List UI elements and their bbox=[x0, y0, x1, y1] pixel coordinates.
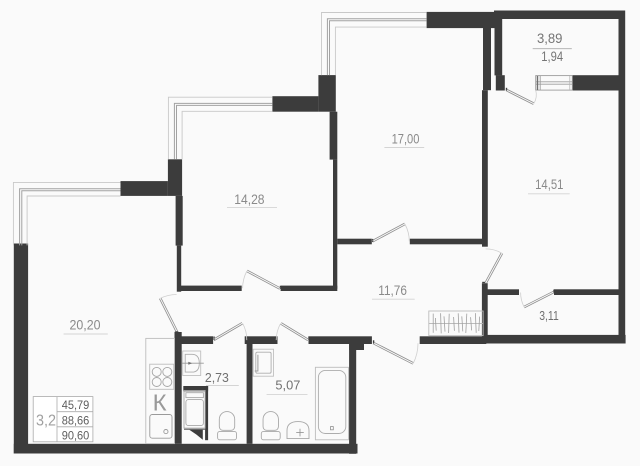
svg-text:К: К bbox=[153, 390, 167, 416]
svg-text:90,60: 90,60 bbox=[62, 428, 90, 442]
svg-text:1,94: 1,94 bbox=[541, 49, 563, 64]
svg-text:17,00: 17,00 bbox=[392, 131, 420, 146]
svg-text:11,76: 11,76 bbox=[378, 283, 407, 298]
svg-text:20,20: 20,20 bbox=[70, 318, 101, 333]
svg-text:3,89: 3,89 bbox=[537, 31, 563, 46]
svg-text:2,73: 2,73 bbox=[205, 370, 229, 385]
svg-text:3,2: 3,2 bbox=[36, 413, 56, 430]
svg-text:3,11: 3,11 bbox=[539, 308, 559, 323]
svg-text:14,51: 14,51 bbox=[535, 177, 563, 192]
svg-text:45,79: 45,79 bbox=[62, 398, 90, 412]
svg-text:14,28: 14,28 bbox=[234, 192, 265, 207]
svg-text:88,66: 88,66 bbox=[62, 413, 90, 427]
svg-text:5,07: 5,07 bbox=[275, 377, 300, 392]
